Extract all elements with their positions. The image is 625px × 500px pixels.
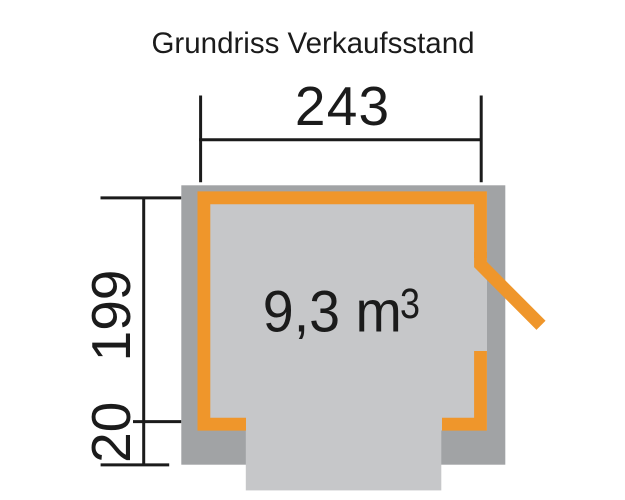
svg-text:Grundriss Verkaufsstand: Grundriss Verkaufsstand — [151, 27, 474, 60]
svg-text:199: 199 — [80, 270, 142, 362]
svg-text:9,3 m: 9,3 m — [263, 280, 402, 345]
svg-text:243: 243 — [295, 75, 390, 137]
svg-text:20: 20 — [80, 402, 142, 463]
svg-text:3: 3 — [400, 281, 420, 328]
